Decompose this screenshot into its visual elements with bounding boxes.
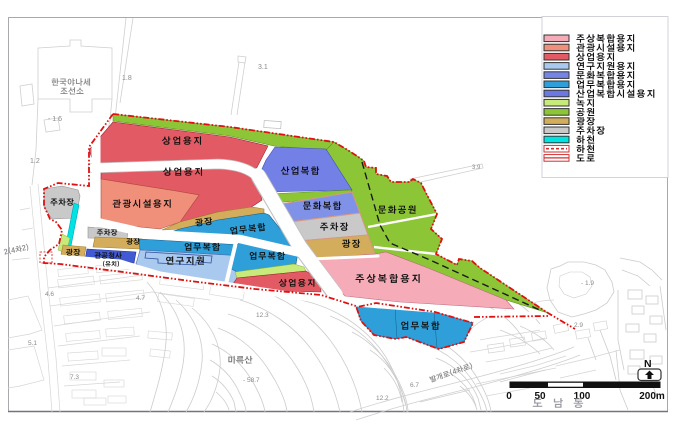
svg-text:12.2: 12.2: [376, 395, 389, 402]
svg-text:3.9: 3.9: [472, 165, 481, 171]
svg-text:7.3: 7.3: [70, 374, 79, 381]
svg-text:4.6: 4.6: [45, 291, 54, 298]
svg-text:1.8: 1.8: [122, 75, 132, 82]
svg-text:- 58.7: - 58.7: [243, 377, 260, 384]
svg-text:6.7: 6.7: [410, 382, 419, 389]
svg-text:1.2: 1.2: [30, 158, 40, 165]
svg-text:12.3: 12.3: [256, 312, 269, 319]
svg-text:0: 0: [506, 391, 512, 402]
svg-text:- 1.6: - 1.6: [48, 116, 62, 123]
svg-text:- 1.9: - 1.9: [581, 280, 594, 287]
svg-text:2.9: 2.9: [574, 322, 583, 329]
svg-text:3.1: 3.1: [258, 64, 268, 71]
svg-text:N: N: [644, 358, 652, 370]
svg-text:4.7: 4.7: [136, 295, 145, 302]
svg-text:50: 50: [534, 391, 546, 402]
svg-text:5.1: 5.1: [28, 340, 37, 347]
svg-text:200m: 200m: [639, 391, 665, 402]
